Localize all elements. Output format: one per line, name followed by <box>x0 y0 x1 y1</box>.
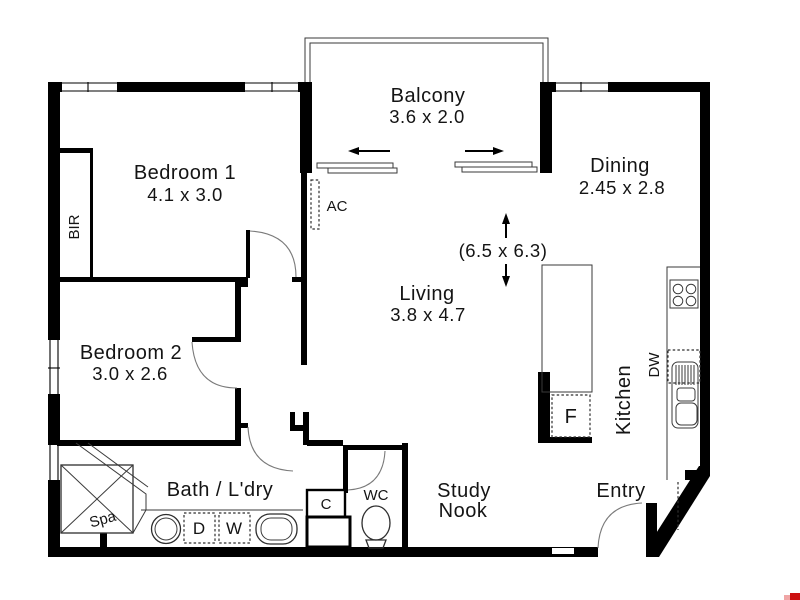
entry-door <box>598 503 642 548</box>
room-label-bedroom2: Bedroom 2 <box>80 342 182 364</box>
label-fridge: F <box>565 406 578 428</box>
label-dw: DW <box>646 352 663 378</box>
room-label-kitchen: Kitchen <box>613 365 635 435</box>
room-label-study: Study <box>437 480 491 502</box>
arrow-right-icon <box>493 147 504 155</box>
room-dims-living: 3.8 x 4.7 <box>390 304 465 325</box>
dishwasher-box <box>668 350 700 383</box>
basin <box>152 515 181 544</box>
balcony-railing-inner <box>310 43 543 82</box>
laundry-tub <box>256 514 297 544</box>
room-label-nook: Nook <box>439 500 488 522</box>
floor-plan-canvas: Balcony 3.6 x 2.0 Bedroom 1 4.1 x 3.0 Di… <box>0 0 800 600</box>
room-label-entry: Entry <box>596 480 645 502</box>
room-label-living: Living <box>399 283 454 305</box>
label-washer: W <box>226 519 242 538</box>
bir-side-wall <box>90 148 93 277</box>
red-watermark <box>784 593 800 600</box>
room-label-bath: Bath / L'dry <box>167 479 274 501</box>
sliding-door-right <box>455 147 537 172</box>
room-label-balcony: Balcony <box>391 85 466 107</box>
bedroom1-door <box>246 230 296 278</box>
balcony-railing-outer <box>305 38 548 82</box>
label-bir: BIR <box>66 214 83 239</box>
sliding-door-left <box>317 147 397 173</box>
overall-dims: (6.5 x 6.3) <box>459 240 548 261</box>
room-dims-dining: 2.45 x 2.8 <box>579 177 665 198</box>
floor-plan: Balcony 3.6 x 2.0 Bedroom 1 4.1 x 3.0 Di… <box>0 0 800 600</box>
toilet <box>362 506 390 548</box>
label-spa: Spa <box>88 508 119 532</box>
entry-door-stub <box>646 503 657 555</box>
room-label-dining: Dining <box>590 155 650 177</box>
room-dims-balcony: 3.6 x 2.0 <box>389 106 464 127</box>
labels: Balcony 3.6 x 2.0 Bedroom 1 4.1 x 3.0 Di… <box>66 85 665 538</box>
room-label-bedroom1: Bedroom 1 <box>134 162 236 184</box>
sink <box>672 362 698 428</box>
bottom-wall-notch <box>552 548 574 554</box>
arrow-down-icon <box>502 276 510 287</box>
sink-drainer <box>676 365 694 385</box>
label-wc: WC <box>364 487 389 504</box>
wc-east-wall <box>402 443 408 548</box>
arrow-left-icon <box>348 147 359 155</box>
arrow-up-icon <box>502 213 510 224</box>
ac-unit <box>311 180 319 229</box>
bath-door <box>248 427 293 471</box>
label-dryer: D <box>193 519 205 538</box>
cooktop <box>670 280 698 308</box>
room-dims-bedroom1: 4.1 x 3.0 <box>147 184 222 205</box>
living-west-wall <box>301 173 307 365</box>
label-ac: AC <box>327 198 348 215</box>
bedroom2-door <box>192 337 237 388</box>
room-dims-bedroom2: 3.0 x 2.6 <box>92 363 167 384</box>
label-cupboard: C <box>321 496 332 513</box>
bir-top-wall <box>57 148 93 153</box>
